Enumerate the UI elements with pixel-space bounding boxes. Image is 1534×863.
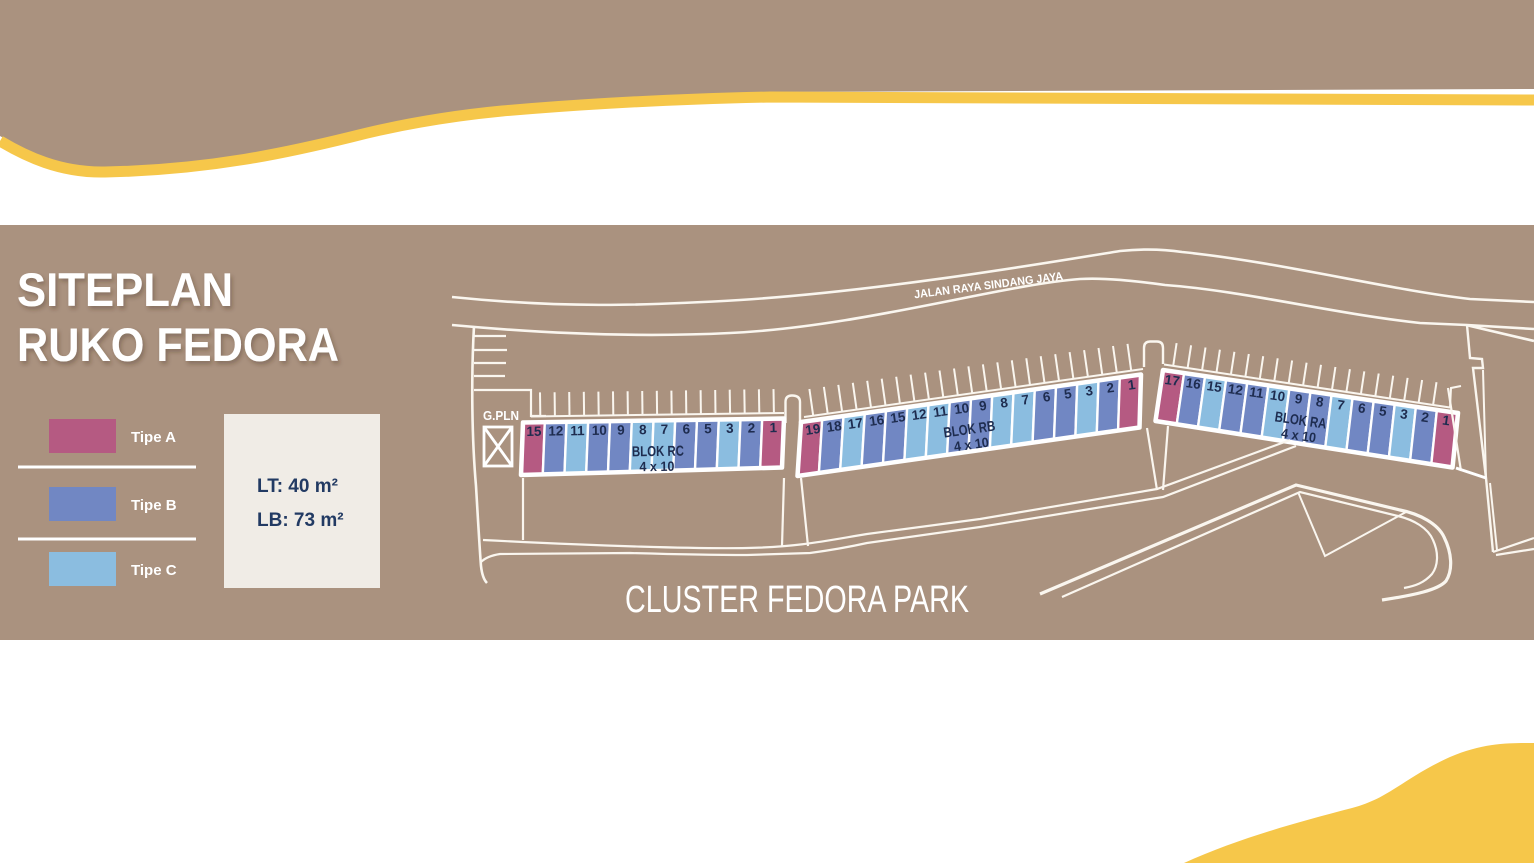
svg-text:2: 2 [748,421,756,436]
svg-text:G.PLN: G.PLN [483,409,519,423]
svg-text:11: 11 [932,403,949,420]
svg-text:6: 6 [682,421,690,436]
svg-text:12: 12 [1227,381,1244,398]
svg-text:10: 10 [592,423,607,438]
svg-text:7: 7 [661,422,669,437]
svg-text:11: 11 [1248,384,1265,401]
svg-text:SITEPLAN: SITEPLAN [17,263,233,316]
svg-text:15: 15 [526,424,542,439]
svg-text:CLUSTER FEDORA PARK: CLUSTER FEDORA PARK [625,579,969,621]
svg-text:12: 12 [911,406,928,423]
svg-text:RUKO FEDORA: RUKO FEDORA [17,318,339,371]
svg-text:12: 12 [548,423,563,438]
svg-text:Tipe B: Tipe B [131,497,177,514]
svg-text:10: 10 [1269,387,1286,404]
svg-text:10: 10 [953,400,970,417]
svg-text:18: 18 [826,418,843,435]
svg-text:4 x 10: 4 x 10 [639,459,674,475]
svg-text:15: 15 [1206,378,1224,395]
svg-text:16: 16 [1185,375,1203,392]
svg-text:19: 19 [804,421,821,438]
svg-text:LB: 73 m²: LB: 73 m² [257,510,344,531]
svg-text:5: 5 [704,421,712,436]
svg-text:8: 8 [639,422,647,437]
svg-text:15: 15 [889,409,906,426]
svg-text:Tipe A: Tipe A [131,429,176,446]
svg-text:17: 17 [1164,372,1181,389]
svg-text:9: 9 [617,423,625,438]
svg-text:17: 17 [847,415,864,432]
svg-text:3: 3 [726,421,734,436]
svg-text:11: 11 [570,423,585,438]
svg-text:16: 16 [868,412,885,429]
svg-text:1: 1 [769,420,777,435]
svg-text:LT: 40 m²: LT: 40 m² [257,476,338,497]
svg-text:BLOK RC: BLOK RC [632,444,685,461]
svg-text:Tipe C: Tipe C [131,562,177,579]
